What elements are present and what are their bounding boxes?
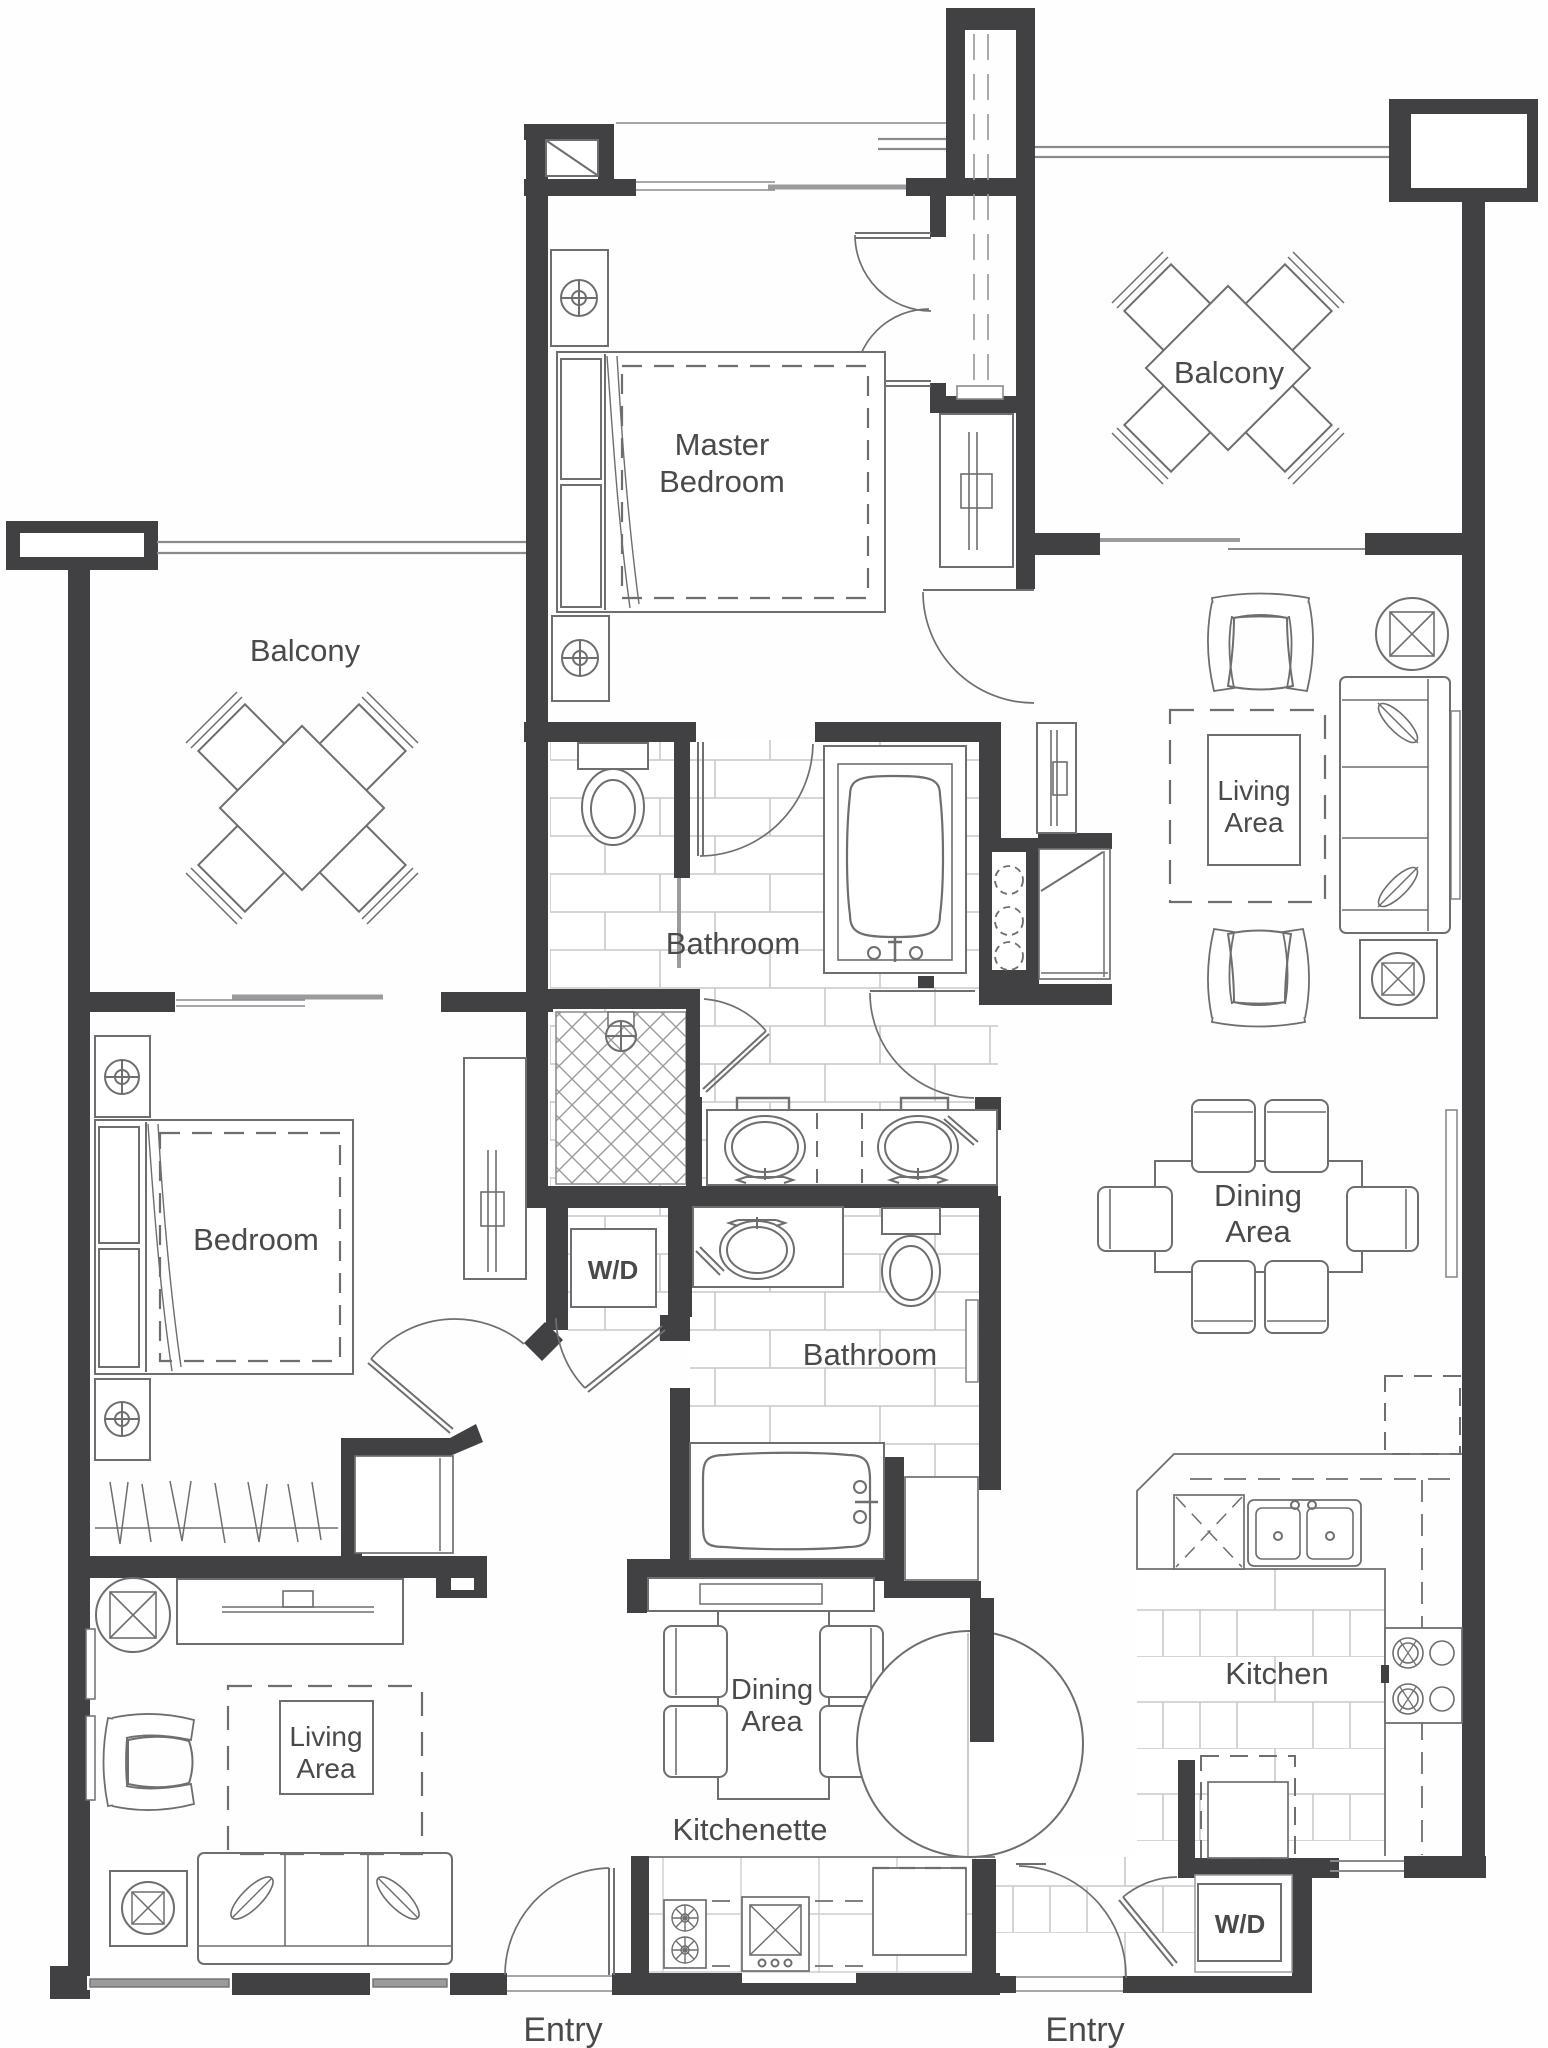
svg-text:Kitchenette: Kitchenette [672,1812,827,1847]
svg-text:Bathroom: Bathroom [803,1337,937,1372]
svg-text:Entry: Entry [1045,2011,1124,2048]
svg-text:Area: Area [296,1753,356,1784]
svg-text:Dining: Dining [1214,1178,1302,1213]
svg-text:Area: Area [741,1706,803,1738]
svg-text:W/D: W/D [588,1255,639,1285]
svg-text:Master: Master [675,427,770,462]
svg-text:Living: Living [1217,775,1290,806]
svg-text:Kitchen: Kitchen [1225,1656,1328,1691]
svg-text:Dining: Dining [731,1674,813,1706]
svg-text:W/D: W/D [1215,1909,1266,1939]
svg-text:Area: Area [1225,1214,1291,1249]
svg-text:Entry: Entry [523,2011,602,2048]
svg-text:Bathroom: Bathroom [666,926,800,961]
svg-text:Bedroom: Bedroom [659,464,785,499]
svg-text:Bedroom: Bedroom [193,1222,319,1257]
svg-text:Balcony: Balcony [250,633,361,668]
svg-text:Balcony: Balcony [1174,355,1285,390]
svg-text:Living: Living [289,1721,362,1752]
svg-text:Area: Area [1224,807,1284,838]
